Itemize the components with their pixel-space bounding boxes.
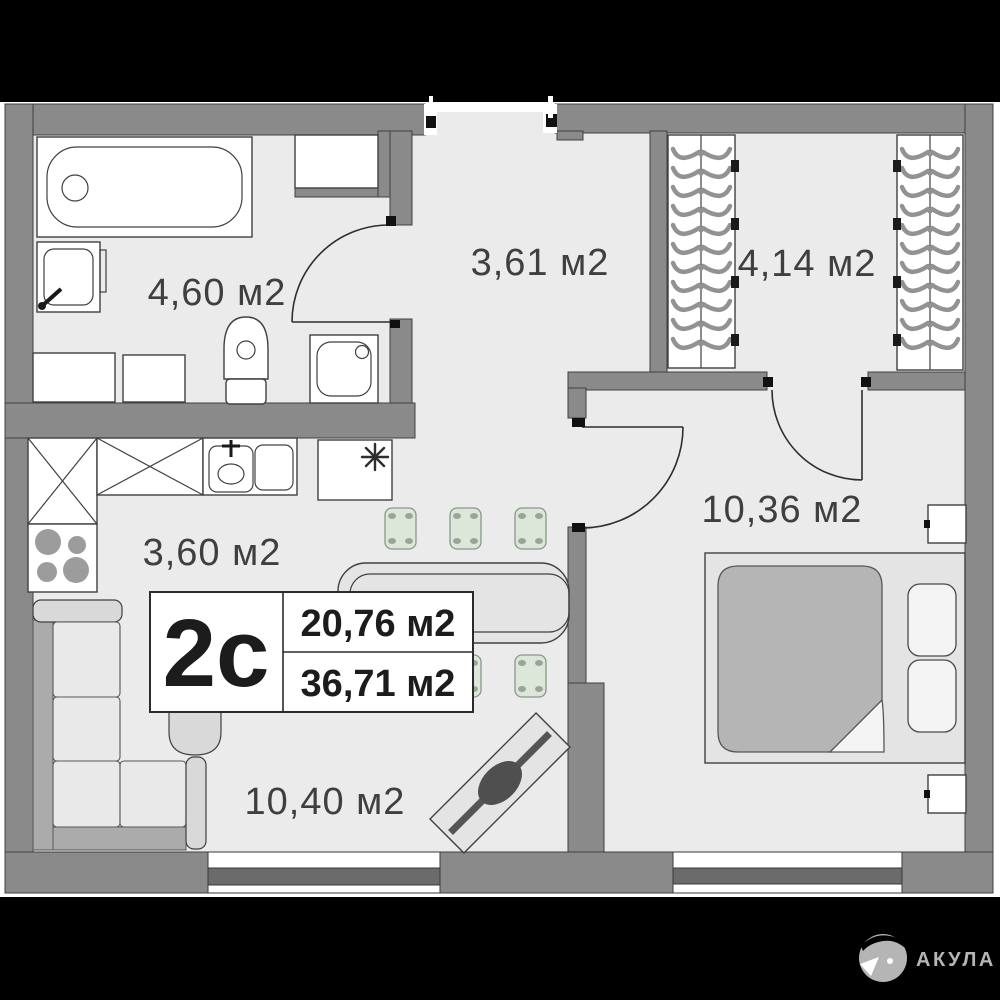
chair (169, 710, 221, 755)
duct-niche (295, 135, 378, 188)
stool (515, 508, 546, 549)
nightstand (924, 775, 966, 813)
bathtub (37, 137, 252, 237)
living-area-value: 20,76 м2 (301, 603, 456, 645)
wardrobe-rack (893, 135, 963, 370)
brand-name: АКУЛА (916, 949, 996, 971)
stool (515, 655, 546, 697)
nightstand (924, 505, 966, 543)
total-area-value: 36,71 м2 (301, 663, 456, 705)
kitchen-counter (97, 438, 203, 495)
room-label-bedroom: 10,36 м2 (702, 489, 863, 531)
bedroom-window (673, 852, 902, 893)
washing-machine (33, 353, 185, 402)
room-label-living: 10,40 м2 (245, 781, 406, 823)
toilet (224, 317, 268, 404)
kitchen-sink (203, 438, 297, 495)
room-label-wardrobe: 4,14 м2 (738, 243, 877, 285)
room-label-bathroom: 4,60 м2 (148, 272, 287, 314)
wardrobe-rack (668, 135, 739, 368)
bed (705, 553, 965, 763)
fridge (318, 440, 392, 500)
fridge-snowflake-icon (362, 444, 388, 470)
stove (28, 524, 97, 592)
washbasin (37, 242, 106, 312)
stool (450, 508, 481, 549)
unit-type-label: 2с (163, 600, 270, 707)
stool (385, 508, 416, 549)
floor-plan: 4,60 м2 3,61 м2 4,14 м2 3,60 м2 10,36 м2… (0, 0, 1000, 1000)
kitchen-counter-corner (28, 438, 97, 524)
info-box: 2с 20,76 м2 36,71 м2 (150, 592, 473, 712)
floor-plan-page: 4,60 м2 3,61 м2 4,14 м2 3,60 м2 10,36 м2… (0, 0, 1000, 1000)
pillow (908, 660, 956, 732)
shower (310, 335, 378, 403)
pillow (908, 584, 956, 656)
room-label-hallway: 3,61 м2 (471, 242, 610, 284)
living-room-window (208, 852, 440, 893)
room-label-kitchen: 3,60 м2 (143, 532, 282, 574)
